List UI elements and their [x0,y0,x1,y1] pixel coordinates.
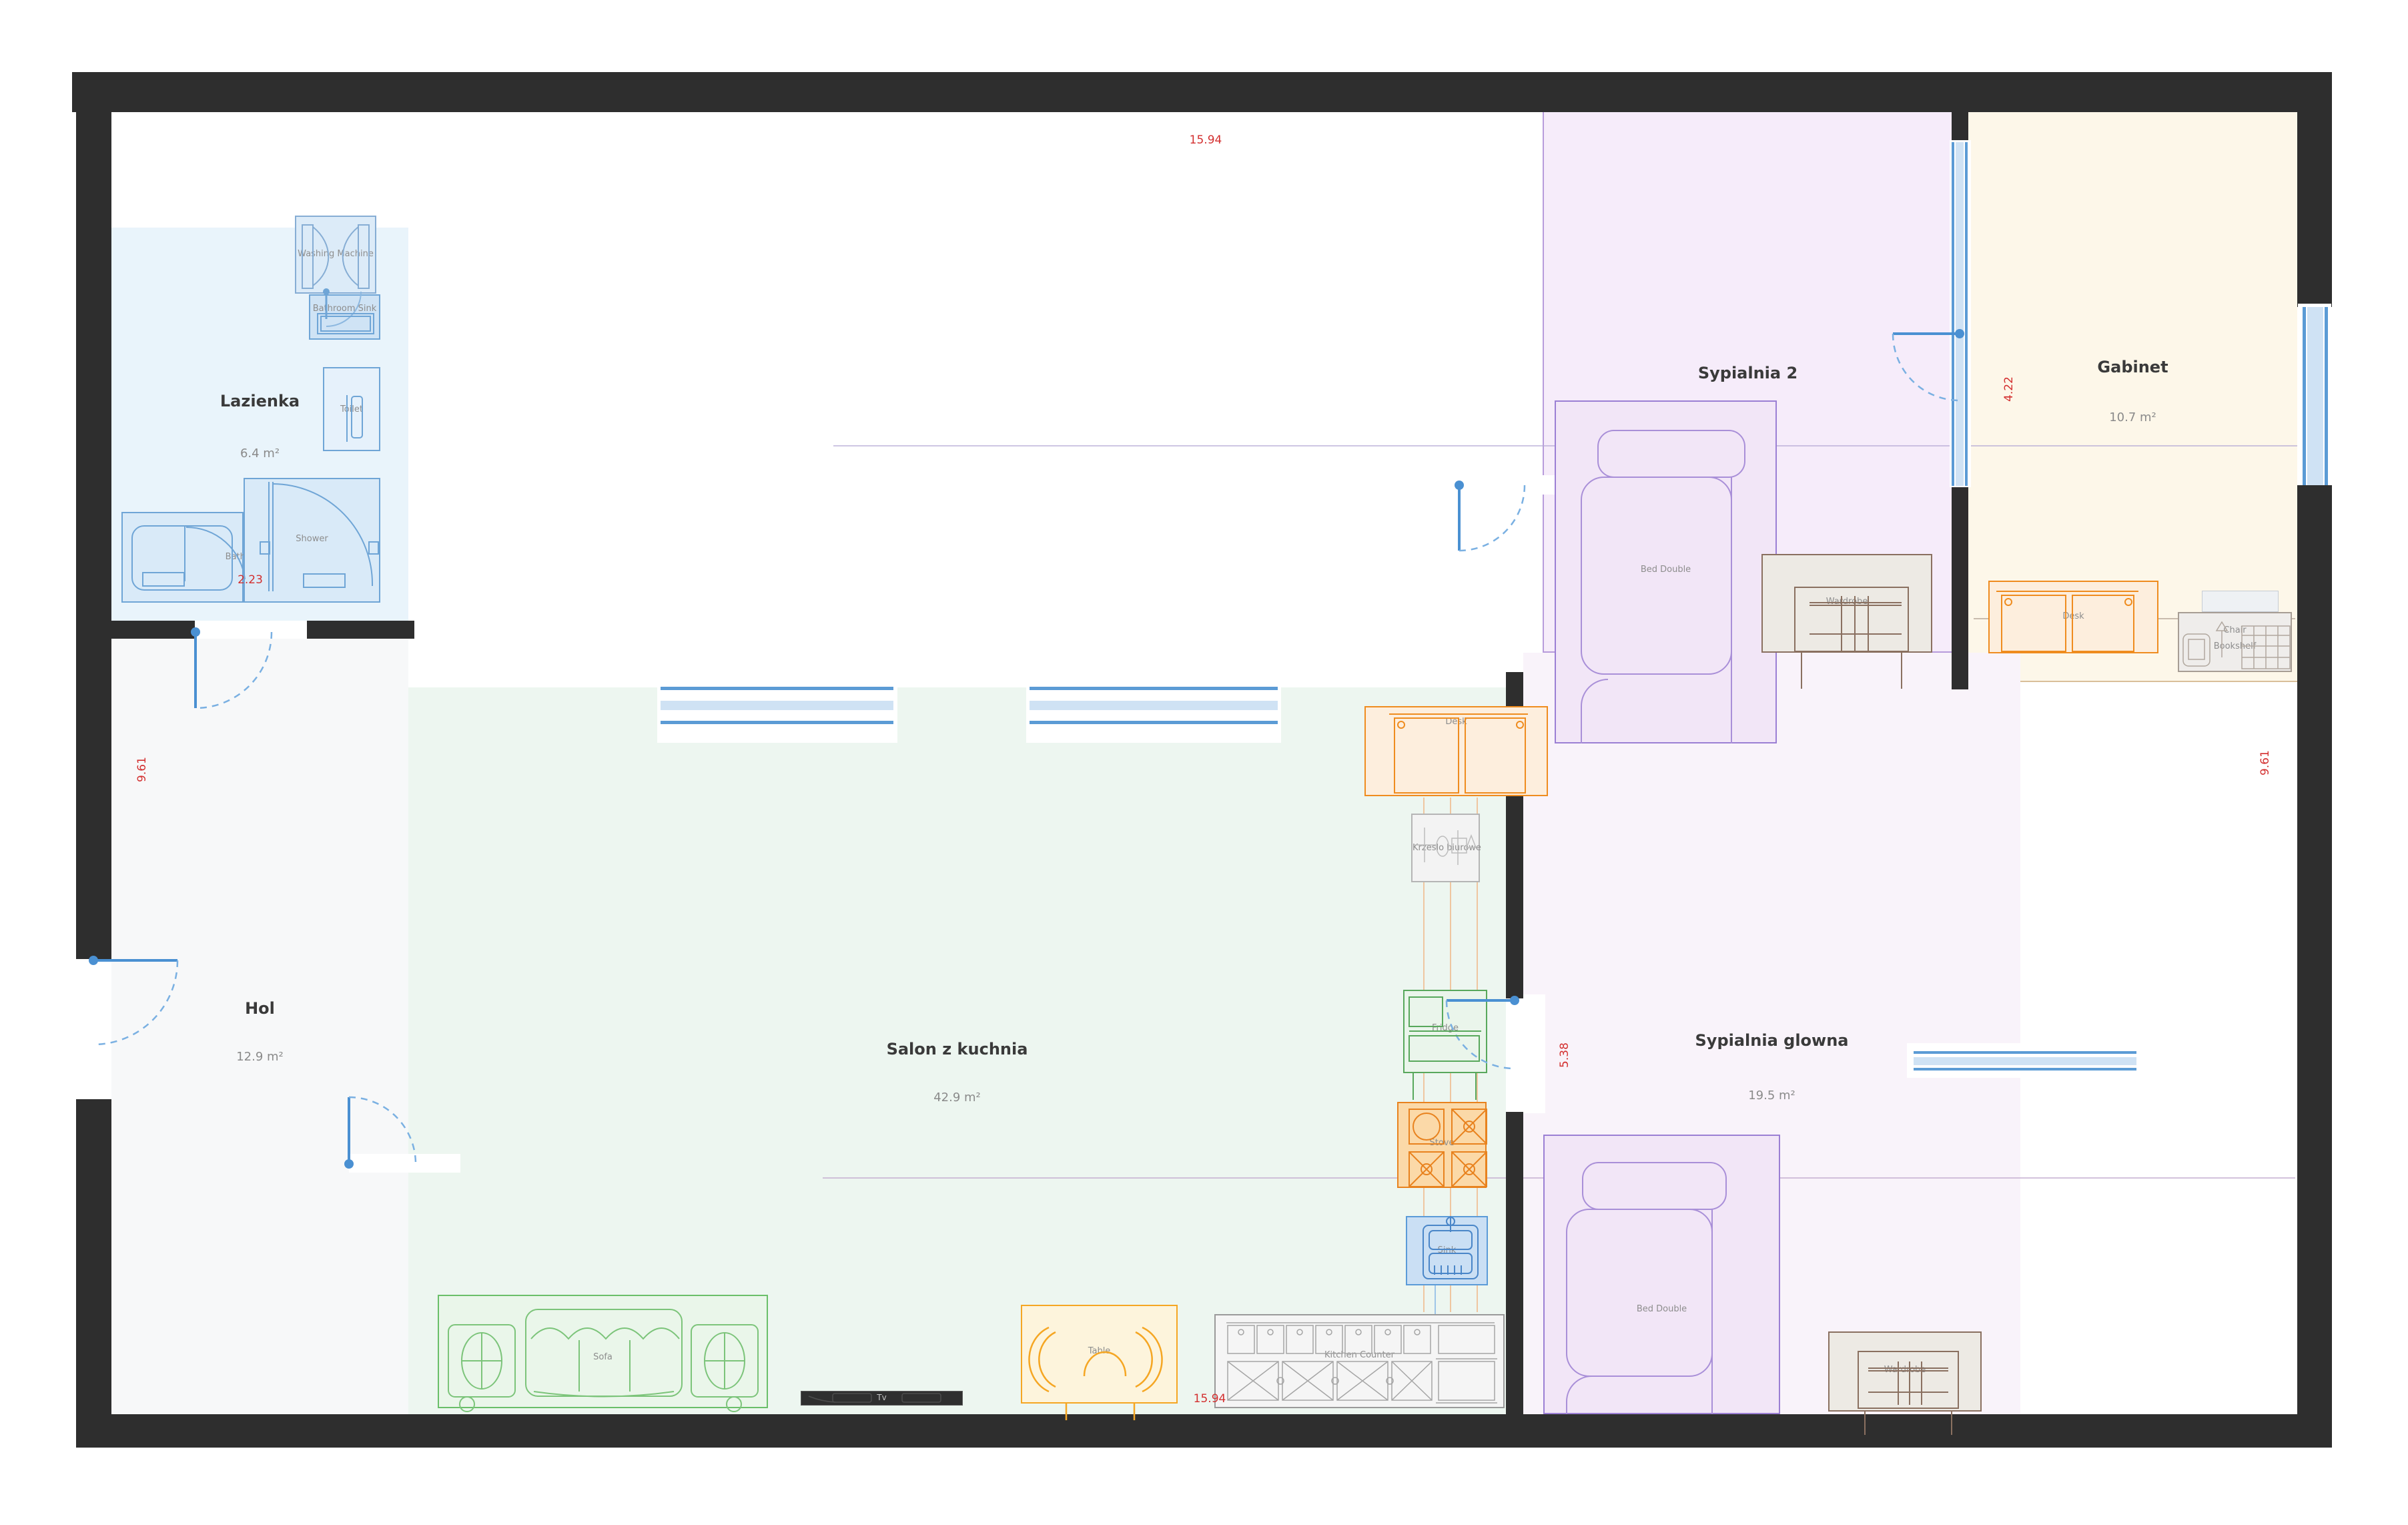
table-icon [1029,1327,1162,1420]
dimension-left: 9.61 [135,733,149,806]
door-lazienka [191,627,272,708]
dimension-bottom: 15.94 [1173,1392,1246,1406]
kitchen-sink-icon [1423,1216,1478,1279]
door-gabinet-wall [1893,329,1964,400]
desk-gabinet-icon [1996,591,2138,651]
floor-plan: Lazienka 6.4 m² Hol 12.9 m² Salon z kuch… [0,0,2408,1525]
bed-glowna-icon [1567,1163,1726,1414]
dimension-gabinet-side: 4.22 [2002,352,2016,426]
chair-bookshelf-icon [2183,622,2290,669]
sofa-icon [448,1309,758,1412]
toilet-icon [347,395,362,442]
fridge-icon [1409,997,1481,1100]
bathroom-sink-icon [318,314,374,334]
wardrobe-sypialnia2-icon [1795,587,1908,689]
dimension-top: 15.94 [1169,133,1242,147]
dimension-bathroom: 2.23 [214,573,287,587]
bed-sypialnia2-icon [1581,430,1745,743]
desk-salon-icon [1389,714,1528,793]
dimension-salon-side: 5.38 [1558,1018,1571,1092]
bathroom-sink-door-arc [323,288,361,326]
office-chair-icon [1415,828,1476,865]
door-hol-salon [344,1097,416,1169]
washing-machine-icon [302,225,369,288]
kitchen-counter-icon [1226,1323,1497,1403]
tv-icon [809,1394,941,1402]
stove-icon [1409,1109,1487,1187]
wardrobe-glowna-icon [1858,1351,1958,1435]
dimension-right: 9.61 [2259,726,2272,800]
door-entrance [89,956,177,1044]
door-sypialnia2 [1455,481,1525,551]
glyph-overlay [0,0,2408,1525]
door-sypialnia-glowna [1447,996,1519,1069]
